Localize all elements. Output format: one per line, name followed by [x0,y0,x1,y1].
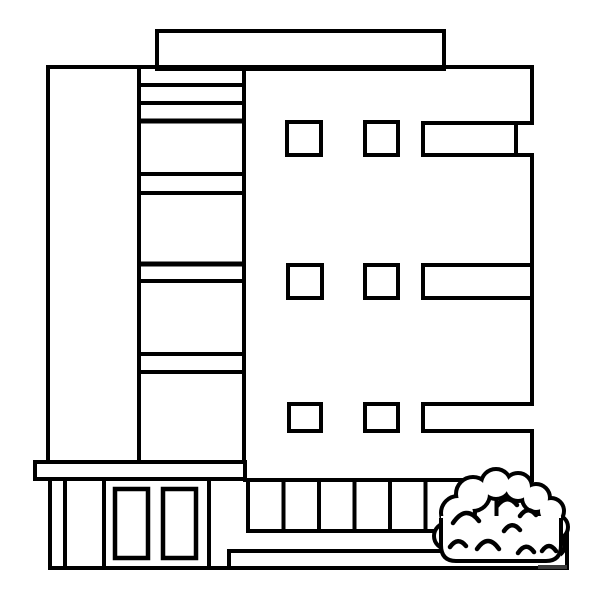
coloring-page [0,0,600,600]
bush-leaf-arc-2 [497,499,517,506]
bush-base-fill [441,516,561,560]
watermark [538,565,567,569]
building-line-art [0,0,600,600]
entrance-ledge [35,462,245,479]
window-floor2-square1 [288,265,322,298]
door-panel-left [115,489,148,558]
window-floor3-square1 [289,404,321,431]
window-floor3-square2 [365,404,398,431]
window-floor1-square1 [287,122,321,155]
bush-leaf-arc-3 [520,510,536,516]
window-floor2-square2 [365,265,398,298]
window-floor1-square2 [365,122,398,155]
door-panel-right [163,489,196,558]
bush-bump-fill-3 [483,471,509,497]
rooftop-structure [157,31,444,69]
